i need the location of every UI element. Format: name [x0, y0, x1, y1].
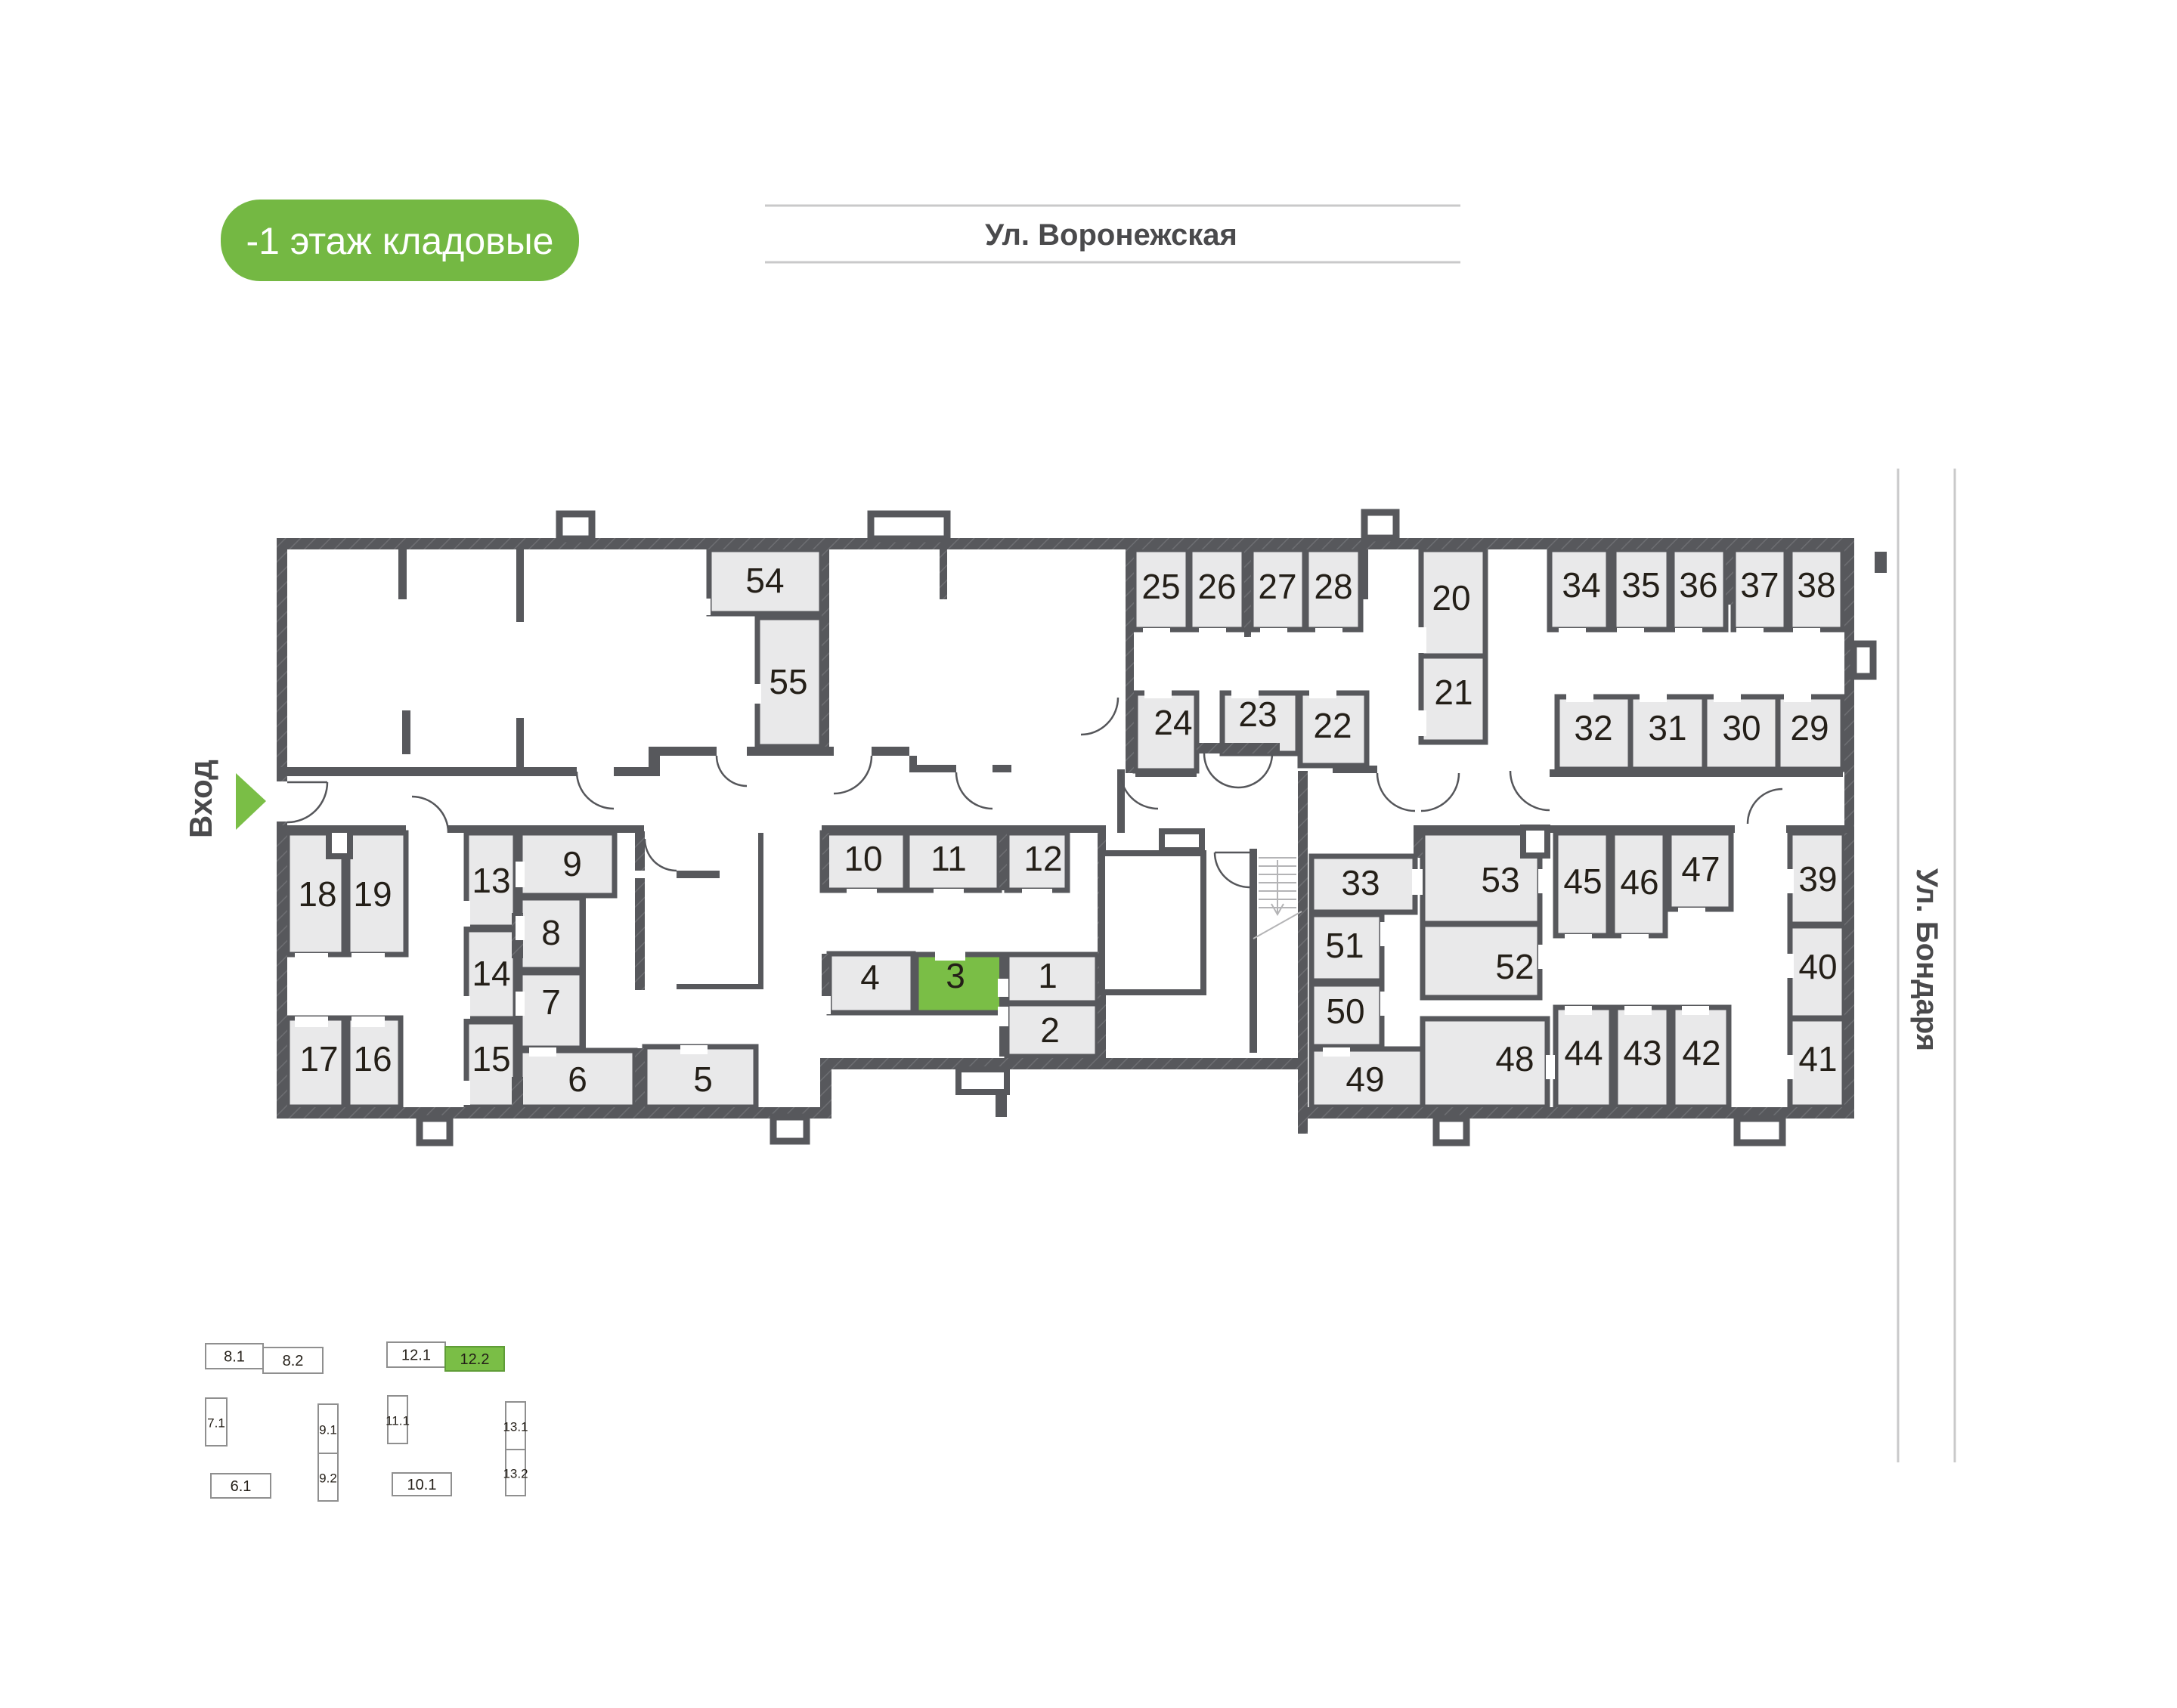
room-50-number: 50 [1326, 992, 1364, 1031]
street-right-label: Ул. Бондаря [1910, 868, 1943, 1051]
stairwell [1253, 858, 1302, 939]
room-9-number: 9 [562, 844, 582, 883]
room-20-number: 20 [1432, 578, 1470, 617]
room-53-number: 53 [1481, 860, 1519, 899]
room-36-number: 36 [1679, 565, 1717, 605]
room-43-number: 43 [1623, 1033, 1661, 1072]
minimap-unit-9.2-label: 9.2 [319, 1471, 337, 1486]
room-46-number: 46 [1620, 862, 1658, 902]
room-52-number: 52 [1495, 947, 1534, 986]
minimap-unit-13.2[interactable]: 13.2 [503, 1450, 528, 1496]
minimap-unit-7.1[interactable]: 7.1 [206, 1398, 227, 1446]
section-minimap: 8.18.27.19.19.26.112.112.211.110.113.113… [206, 1342, 528, 1501]
room-45-number: 45 [1563, 862, 1602, 901]
minimap-unit-11.1-label: 11.1 [386, 1414, 410, 1428]
minimap-unit-12.1[interactable]: 12.1 [387, 1342, 445, 1367]
floor-badge: -1 этаж кладовые [221, 200, 579, 281]
minimap-unit-12.2[interactable]: 12.2 [445, 1347, 504, 1371]
room-6-number: 6 [568, 1060, 587, 1099]
room-34-number: 34 [1562, 565, 1600, 605]
floor-plan: -1 этаж кладовые Ул. Воронежская Ул. Бон… [0, 0, 2177, 1708]
room-3-number: 3 [946, 956, 965, 995]
room-10-number: 10 [844, 839, 882, 878]
room-29-number: 29 [1790, 708, 1829, 747]
room-23-number: 23 [1238, 695, 1277, 734]
room-14-number: 14 [472, 954, 510, 993]
minimap-unit-6.1-label: 6.1 [231, 1478, 252, 1495]
room-25-number: 25 [1141, 567, 1180, 606]
entrance-label: Вход [183, 760, 218, 838]
entrance-marker: Вход [183, 760, 266, 838]
room-49-number: 49 [1346, 1060, 1384, 1099]
room-21-number: 21 [1434, 673, 1472, 712]
minimap-unit-8.2[interactable]: 8.2 [263, 1348, 323, 1373]
street-top: Ул. Воронежская [765, 206, 1460, 262]
entrance-arrow-icon [236, 773, 266, 830]
room-47-number: 47 [1681, 849, 1720, 889]
street-top-label: Ул. Воронежская [985, 218, 1237, 252]
room-38-number: 38 [1797, 565, 1835, 605]
minimap-unit-12.2-label: 12.2 [460, 1351, 490, 1368]
room-41-number: 41 [1798, 1039, 1837, 1078]
floor-badge-label: -1 этаж кладовые [246, 220, 554, 262]
room-13-number: 13 [472, 861, 510, 900]
room-11-number: 11 [931, 839, 967, 878]
minimap-unit-9.1[interactable]: 9.1 [318, 1404, 338, 1453]
floorplan-page: -1 этаж кладовые Ул. Воронежская Ул. Бон… [0, 0, 2177, 1708]
room-55-number: 55 [769, 662, 807, 701]
minimap-unit-13.2-label: 13.2 [503, 1467, 528, 1481]
room-31-number: 31 [1648, 708, 1686, 747]
minimap-unit-13.1-label: 13.1 [503, 1420, 528, 1434]
room-39-number: 39 [1798, 859, 1837, 899]
room-32-number: 32 [1574, 708, 1612, 747]
minimap-unit-7.1-label: 7.1 [207, 1416, 225, 1431]
minimap-unit-12.1-label: 12.1 [401, 1348, 431, 1364]
room-22-number: 22 [1313, 706, 1352, 745]
room-5-number: 5 [693, 1060, 713, 1099]
minimap-unit-9.1-label: 9.1 [319, 1423, 337, 1437]
room-33-number: 33 [1341, 863, 1380, 902]
minimap-unit-10.1-label: 10.1 [407, 1477, 437, 1493]
minimap-unit-8.2-label: 8.2 [283, 1353, 304, 1369]
minimap-unit-6.1[interactable]: 6.1 [211, 1474, 271, 1498]
room-15-number: 15 [472, 1039, 510, 1078]
room-1-number: 1 [1038, 956, 1058, 995]
room-12-number: 12 [1023, 839, 1062, 878]
room-4-number: 4 [860, 958, 880, 997]
room-2-number: 2 [1040, 1010, 1060, 1050]
minimap-unit-8.1[interactable]: 8.1 [206, 1344, 263, 1369]
room-48-number: 48 [1495, 1039, 1534, 1078]
room-54-number: 54 [745, 561, 784, 600]
room-27-number: 27 [1258, 567, 1296, 606]
room-26-number: 26 [1197, 567, 1236, 606]
minimap-unit-13.1[interactable]: 13.1 [503, 1402, 528, 1450]
room-51-number: 51 [1325, 926, 1364, 965]
room-24-number: 24 [1154, 703, 1192, 742]
room-44-number: 44 [1564, 1033, 1603, 1072]
room-40-number: 40 [1798, 947, 1837, 986]
minimap-unit-9.2[interactable]: 9.2 [318, 1453, 338, 1501]
minimap-unit-11.1[interactable]: 11.1 [386, 1396, 410, 1443]
room-42-number: 42 [1682, 1033, 1720, 1072]
room-28-number: 28 [1314, 567, 1352, 606]
room-17-number: 17 [299, 1039, 338, 1078]
room-37-number: 37 [1740, 565, 1779, 605]
minimap-unit-10.1[interactable]: 10.1 [392, 1473, 451, 1496]
room-19-number: 19 [353, 874, 392, 914]
room-30-number: 30 [1722, 708, 1760, 747]
street-right: Ул. Бондаря [1898, 469, 1955, 1462]
room-16-number: 16 [353, 1039, 392, 1078]
room-18-number: 18 [298, 874, 336, 914]
room-8-number: 8 [541, 913, 561, 952]
minimap-unit-8.1-label: 8.1 [224, 1349, 245, 1366]
room-7-number: 7 [541, 982, 561, 1022]
room-35-number: 35 [1621, 565, 1660, 605]
